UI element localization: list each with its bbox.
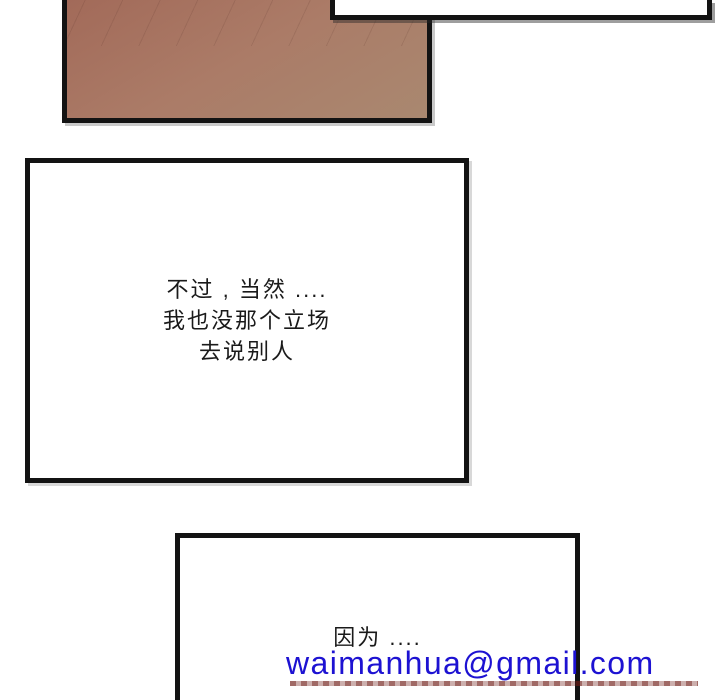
watermark-underline — [290, 681, 698, 686]
speech-text-block: 不过 , 当然 .... 我也没那个立场 去说别人 — [163, 274, 331, 367]
speech-panel-middle: 不过 , 当然 .... 我也没那个立场 去说别人 — [25, 158, 469, 483]
blank-panel-top-right — [330, 0, 712, 20]
comic-page: 不过 , 当然 .... 我也没那个立场 去说别人 因为 .... waiman… — [0, 0, 720, 700]
watermark-email: waimanhua@gmail.com — [286, 645, 655, 681]
speech-line-2: 我也没那个立场 — [163, 305, 331, 336]
speech-line-1: 不过 , 当然 .... — [163, 274, 331, 305]
speech-line-3: 去说别人 — [163, 336, 331, 367]
